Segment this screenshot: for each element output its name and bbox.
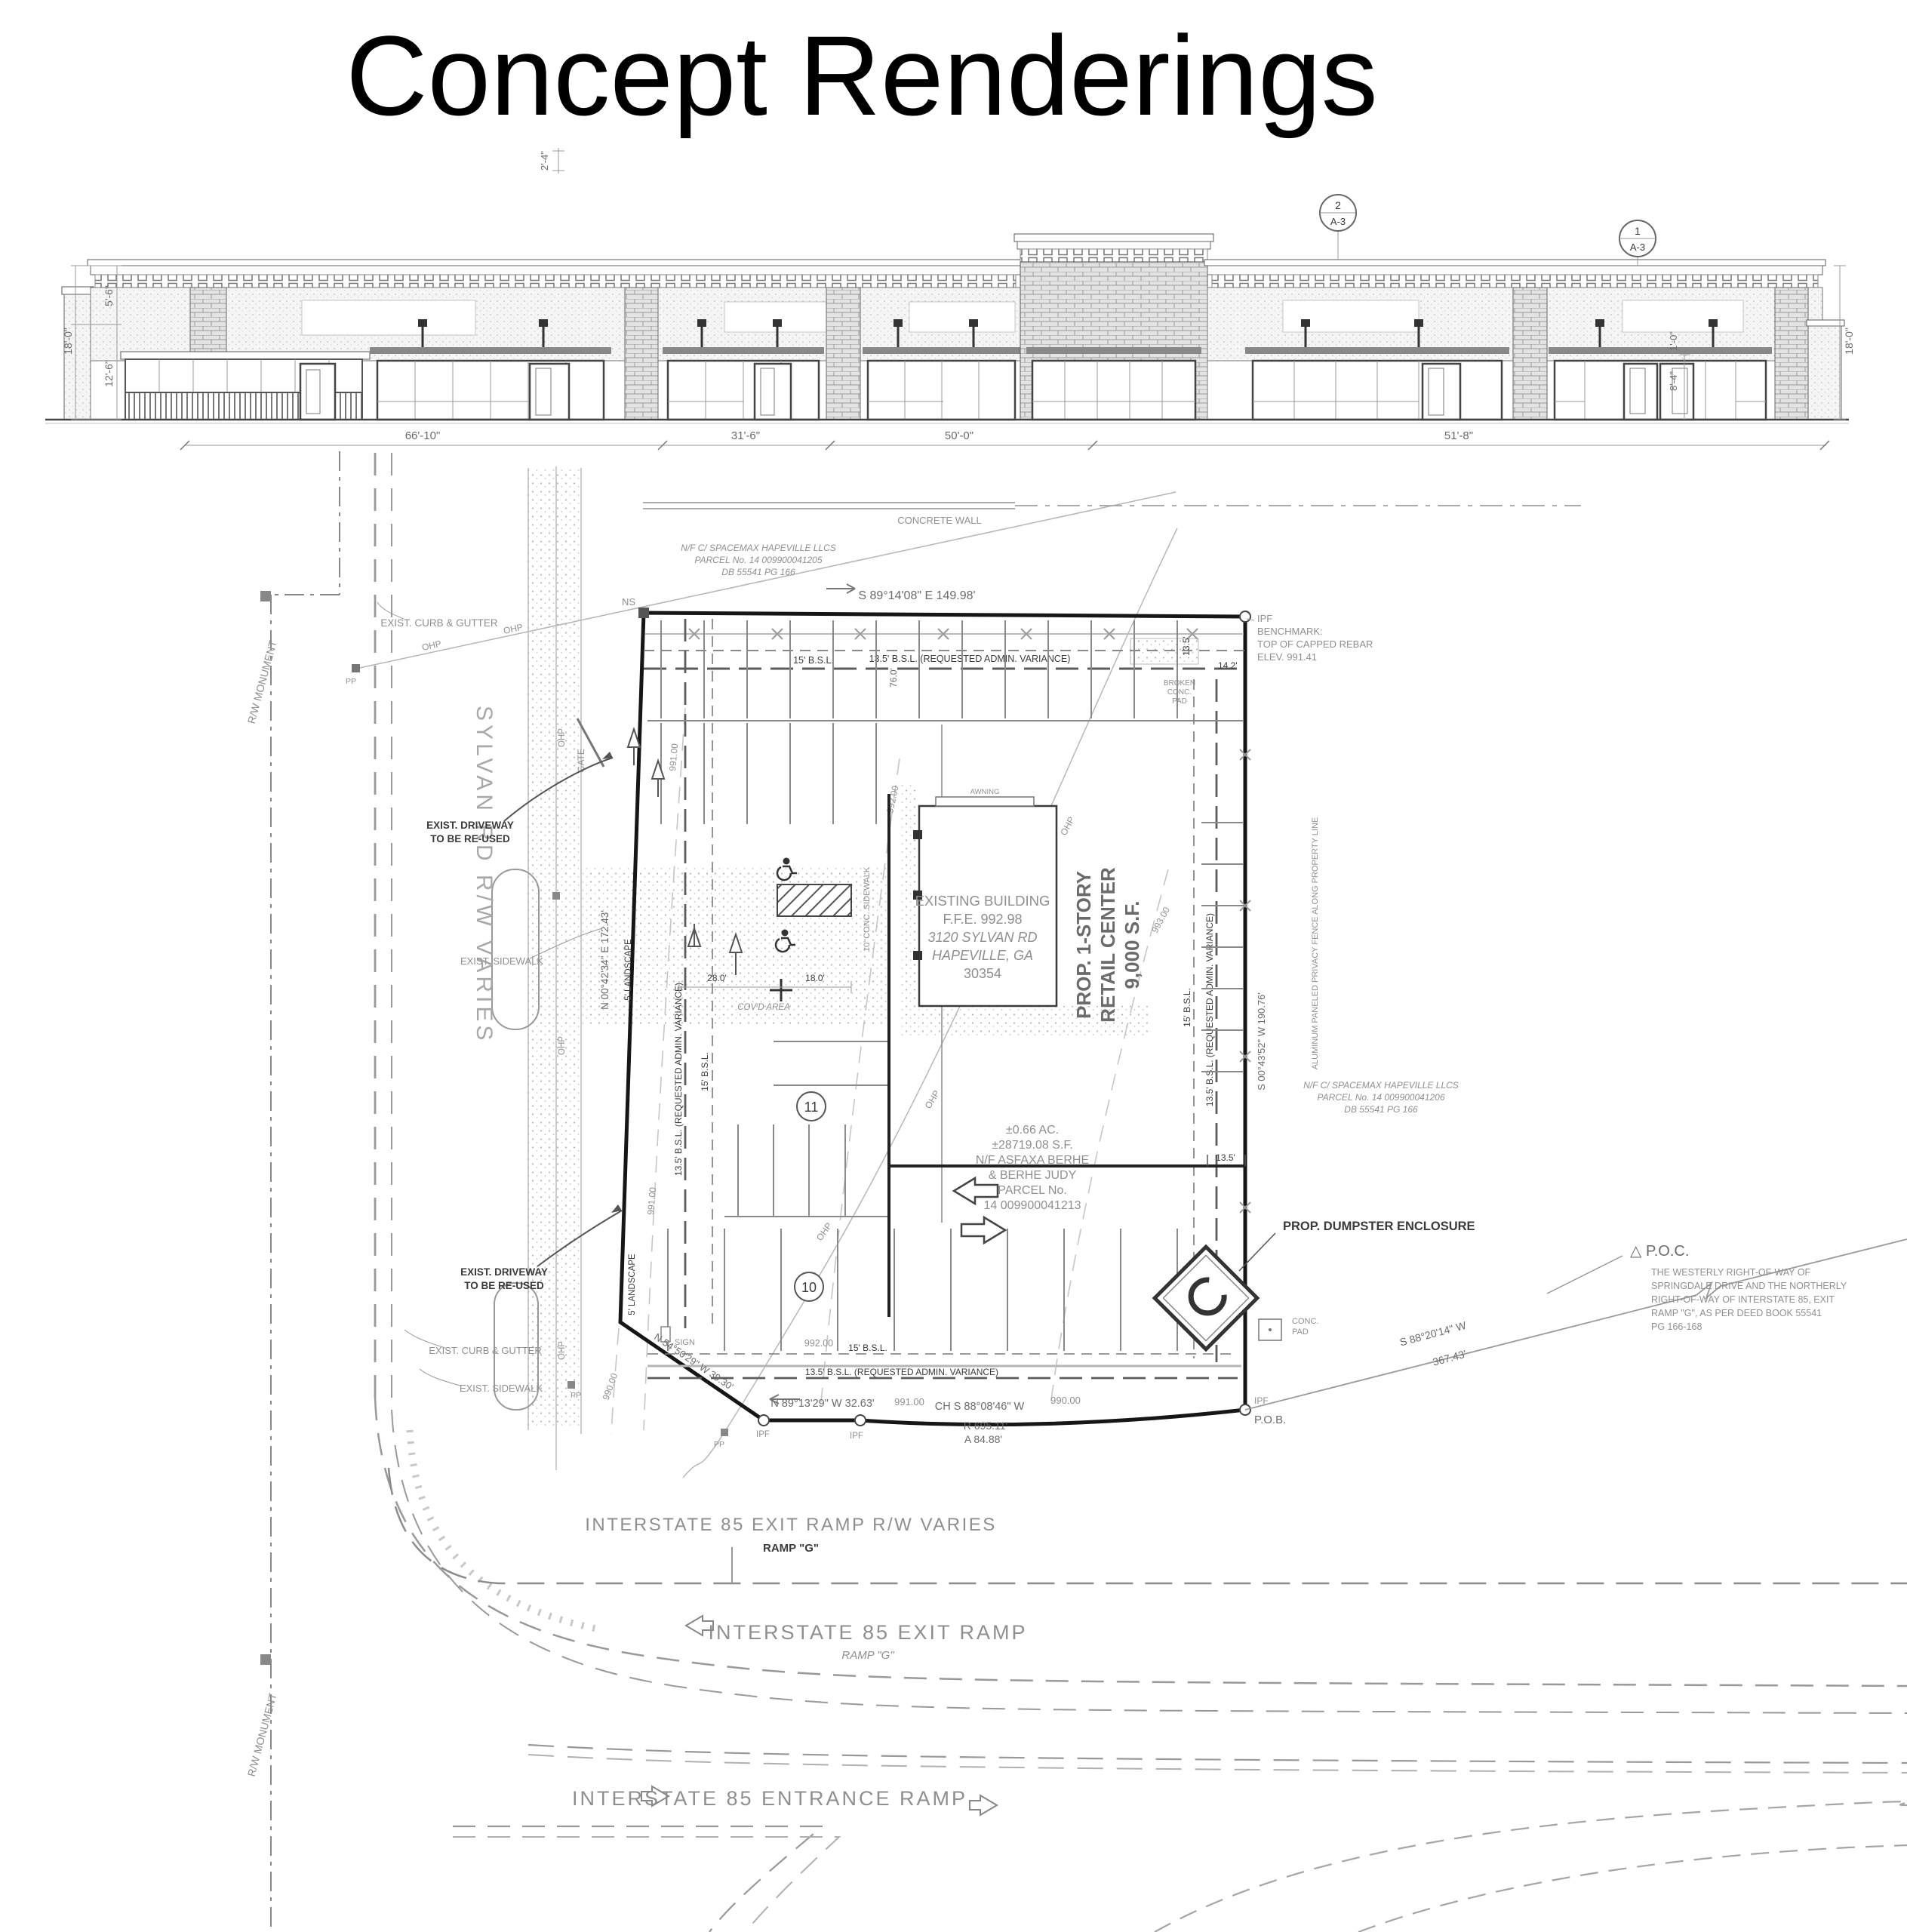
- dim-label: 12'-6": [103, 360, 115, 387]
- storefront: [868, 361, 1015, 420]
- concrete-wall: CONCRETE WALL: [643, 503, 1581, 526]
- svg-text:& BERHE JUDY: & BERHE JUDY: [989, 1169, 1077, 1182]
- svg-text:EXIST. SIDEWALK: EXIST. SIDEWALK: [460, 955, 543, 967]
- svg-text:IPF: IPF: [756, 1430, 770, 1439]
- page-title: Concept Renderings: [346, 12, 1378, 139]
- dim-label: 18'-0": [1843, 328, 1855, 355]
- parcel-north-line: PARCEL No. 14 009900041205: [694, 555, 822, 565]
- svg-text:IPF: IPF: [850, 1432, 863, 1441]
- dim-label: 51'-8": [1444, 429, 1473, 442]
- bsl-label: 15' B.S.L.: [700, 1052, 710, 1091]
- dim-label: 5'-6": [103, 285, 115, 306]
- building-elevation: 2 A-3 1 A-3 2'-4" 5'-6" 18'-0" 12'-6" 1'…: [45, 148, 1855, 450]
- contour-label: 993.00: [1149, 905, 1172, 934]
- existing-building: AWNING EXISTING BUILDING F.F.E. 992.98 3…: [889, 788, 1245, 1317]
- svg-text:EXISTING BUILDING: EXISTING BUILDING: [915, 893, 1050, 909]
- rw-monument-label: R/W MONUMENT: [245, 638, 279, 724]
- svg-text:TO BE RE-USED: TO BE RE-USED: [430, 833, 510, 844]
- canopy: [370, 347, 1020, 354]
- parcel-north-line: DB 55541 PG 166: [721, 567, 795, 577]
- svg-text:10: 10: [801, 1280, 817, 1295]
- storefront: [668, 361, 819, 420]
- detail-callout: 1 A-3: [1619, 220, 1656, 266]
- svg-text:11: 11: [804, 1100, 819, 1115]
- poc-note: △ P.O.C. THE WESTERLY RIGHT-OF-WAY OF SP…: [1547, 1243, 1847, 1332]
- svg-text:EXIST. DRIVEWAY: EXIST. DRIVEWAY: [426, 820, 514, 831]
- svg-text:△ P.O.C.: △ P.O.C.: [1630, 1243, 1689, 1260]
- retail-label: 9,000 S.F.: [1121, 900, 1143, 989]
- callout-number: 2: [1335, 199, 1341, 211]
- exit-rw-label: INTERSTATE 85 EXIT RAMP R/W VARIES: [585, 1515, 997, 1535]
- svg-text:991.00: 991.00: [894, 1396, 924, 1407]
- dumpster-label: PROP. DUMPSTER ENCLOSURE: [1283, 1220, 1475, 1233]
- svg-text:HAPEVILLE, GA: HAPEVILLE, GA: [932, 948, 1033, 963]
- ohp-label: OHP: [814, 1220, 834, 1242]
- bsl-label: 13.5' B.S.L. (REQUESTED ADMIN. VARIANCE): [869, 654, 1071, 664]
- bearing-top-label: S 89°14'08" E 149.98': [858, 589, 975, 602]
- parcel-east-line: N/F C/ SPACEMAX HAPEVILLE LLCS: [1303, 1080, 1459, 1091]
- broken-pad-label: PAD: [1172, 697, 1187, 706]
- tower: [1014, 234, 1213, 420]
- detail-callout: 2 A-3: [1320, 195, 1356, 260]
- dim-label: 1'-0": [1668, 331, 1679, 351]
- parcel-north-line: N/F C/ SPACEMAX HAPEVILLE LLCS: [681, 543, 836, 553]
- concept-renderings-sheet: Concept Renderings: [0, 0, 1907, 1932]
- ohp-label: OHP: [558, 728, 567, 747]
- dim-label: 66'-10": [405, 429, 441, 442]
- svg-text:EXIST. CURB & GUTTER: EXIST. CURB & GUTTER: [429, 1345, 542, 1356]
- svg-text:RAMP "G", AS PER DEED BOOK 555: RAMP "G", AS PER DEED BOOK 55541: [1651, 1308, 1822, 1318]
- ramp-g-label: RAMP "G": [841, 1649, 894, 1662]
- svg-text:EXIST. SIDEWALK: EXIST. SIDEWALK: [460, 1383, 543, 1394]
- brick-pier: [1775, 288, 1808, 420]
- svg-text:RIGHT-OF-WAY OF INTERSTATE 85,: RIGHT-OF-WAY OF INTERSTATE 85, EXIT: [1651, 1294, 1835, 1305]
- contour-label: 992.00: [884, 784, 900, 814]
- svg-text:EXIST. CURB & GUTTER: EXIST. CURB & GUTTER: [380, 617, 498, 629]
- bsl-label: 15' B.S.L.: [848, 1343, 887, 1353]
- conc-pad: CONC. PAD: [1259, 1317, 1318, 1340]
- bsl-label: 13.5' B.S.L. (REQUESTED ADMIN. VARIANCE): [1204, 913, 1215, 1106]
- svg-text:P.O.B.: P.O.B.: [1254, 1414, 1286, 1426]
- svg-text:30354: 30354: [964, 966, 1001, 981]
- ohp-label: OHP: [923, 1088, 943, 1110]
- ns-label: NS: [622, 596, 635, 608]
- contour-label: 990.00: [601, 1371, 620, 1401]
- storefront-double-door: [1555, 361, 1766, 420]
- south-boundary-labels: N 89°13'29" W 32.63' CH S 88°08'46" W 99…: [652, 1331, 1286, 1445]
- ramp-g-label: RAMP "G": [763, 1542, 819, 1555]
- callout-number: 1: [1635, 225, 1641, 237]
- dim-label: 28.0': [707, 973, 727, 983]
- sign-band: [1622, 300, 1743, 332]
- contour-label: 991.00: [667, 743, 680, 771]
- sidewalk-10-label: 10' CONC. SIDEWALK: [863, 866, 872, 952]
- parcel-east-line: PARCEL No. 14 009900041206: [1317, 1092, 1444, 1103]
- contour-label: 992.00: [804, 1338, 833, 1349]
- dim-label: 13.5': [1181, 636, 1192, 656]
- interstate-ramps: INTERSTATE 85 EXIT RAMP R/W VARIES RAMP …: [389, 1468, 1907, 1932]
- benchmark-note: IPF BENCHMARK: TOP OF CAPPED REBAR ELEV.…: [1247, 613, 1373, 663]
- dim-label: 14.2': [1218, 660, 1238, 671]
- svg-text:CONC.: CONC.: [1292, 1317, 1318, 1326]
- landscape-label: 5' LANDSCAPE: [628, 1254, 637, 1315]
- fence-note-label: ALUMINUM PANELED PRIVACY FENCE ALONG PRO…: [1311, 817, 1320, 1070]
- svg-text:PARCEL No.: PARCEL No.: [998, 1184, 1067, 1197]
- bearing-left-label: N 00°42'34" E 172.43': [599, 910, 611, 1010]
- landscape-label: 5' LANDSCAPE: [624, 939, 633, 1001]
- bsl-label: 13.5' B.S.L. (REQUESTED ADMIN. VARIANCE): [673, 983, 684, 1176]
- svg-text:EXIST. DRIVEWAY: EXIST. DRIVEWAY: [460, 1266, 548, 1278]
- callout-sheet: A-3: [1630, 241, 1645, 253]
- svg-text:SPRINGDALE DRIVE AND THE NORTH: SPRINGDALE DRIVE AND THE NORTHERLY: [1651, 1281, 1847, 1291]
- se-row-line: S 88°20'14" W 367.43': [1245, 1239, 1907, 1410]
- svg-text:ELEV. 991.41: ELEV. 991.41: [1257, 651, 1317, 663]
- site-parcel-text: ±0.66 AC. ±28719.08 S.F. N/F ASFAXA BERH…: [976, 1124, 1089, 1212]
- svg-text:R 695.11': R 695.11': [964, 1420, 1007, 1432]
- porch: [121, 352, 370, 420]
- retail-label: RETAIL CENTER: [1097, 867, 1119, 1023]
- exit-ramp-label: INTERSTATE 85 EXIT RAMP: [708, 1621, 1027, 1644]
- bsl-label: 15' B.S.L.: [793, 655, 834, 666]
- svg-text:PG 166-168: PG 166-168: [1651, 1321, 1702, 1332]
- broken-pad-label: BROKEN: [1164, 679, 1195, 688]
- dim-label: 8'-4": [1668, 371, 1679, 391]
- dim-label: 76.0': [888, 668, 899, 688]
- svg-text:N/F ASFAXA BERHE: N/F ASFAXA BERHE: [976, 1154, 1089, 1167]
- bearing-right-label: S 00°43'52" W 190.76': [1256, 992, 1267, 1091]
- site-plan: R/W MONUMENT R/W MONUMENT PP PP PP OHP O…: [245, 451, 1907, 1932]
- svg-text:BENCHMARK:: BENCHMARK:: [1257, 626, 1323, 637]
- svg-text:CH S 88°08'46" W: CH S 88°08'46" W: [935, 1401, 1025, 1413]
- sign-band: [909, 302, 1015, 332]
- pp-label: PP: [571, 1391, 581, 1400]
- svg-text:3120 SYLVAN RD: 3120 SYLVAN RD: [927, 930, 1037, 945]
- broken-pad-label: CONC.: [1167, 688, 1192, 697]
- svg-text:14 009900041213: 14 009900041213: [983, 1199, 1081, 1212]
- dim-label: 13.5': [1216, 1152, 1235, 1163]
- contour-label: 991.00: [645, 1186, 658, 1215]
- storefront: [1253, 361, 1502, 420]
- parcel-east-line: DB 55541 PG 166: [1344, 1104, 1418, 1115]
- storefront: [377, 361, 604, 420]
- ohp-label: OHP: [1058, 815, 1077, 838]
- brick-pier: [1513, 288, 1547, 420]
- brick-pier: [625, 288, 658, 420]
- svg-text:TOP OF CAPPED REBAR: TOP OF CAPPED REBAR: [1257, 638, 1373, 650]
- sign-band: [302, 300, 475, 335]
- crosswalk-hatch: [777, 884, 851, 916]
- retail-label: PROP. 1-STORY: [1072, 871, 1095, 1019]
- ohp-label: OHP: [503, 622, 524, 636]
- sign-band: [1283, 300, 1419, 332]
- svg-text:PAD: PAD: [1292, 1327, 1309, 1337]
- svg-text:A 84.88': A 84.88': [964, 1433, 1002, 1445]
- pp-label: PP: [714, 1440, 724, 1449]
- dim-label: 2'-4": [539, 151, 550, 171]
- sylvan-rd-label: SYLVAN RD R/W VARIES: [472, 706, 497, 1044]
- dim-label: 31'-6": [731, 429, 760, 442]
- dim-label: 18.0': [805, 973, 825, 983]
- rw-monument-line: R/W MONUMENT R/W MONUMENT: [245, 451, 340, 1932]
- stall-count-badge: 10: [795, 1272, 823, 1301]
- svg-text:IPF: IPF: [1257, 613, 1272, 624]
- rw-monument-label: R/W MONUMENT: [245, 1691, 279, 1777]
- dim-label: 18'-0": [62, 328, 74, 355]
- concrete-wall-label: CONCRETE WALL: [897, 515, 981, 526]
- callout-sheet: A-3: [1330, 216, 1346, 227]
- bsl-label: 15' B.S.L.: [1182, 988, 1192, 1027]
- svg-text:990.00: 990.00: [1050, 1395, 1081, 1406]
- svg-text:S 88°20'14" W: S 88°20'14" W: [1398, 1319, 1468, 1349]
- ohp-label: OHP: [558, 1341, 567, 1360]
- stall-count-badge: 11: [797, 1092, 826, 1121]
- brick-pier: [826, 288, 860, 420]
- svg-text:TO BE RE-USED: TO BE RE-USED: [464, 1280, 544, 1291]
- awning-label: AWNING: [970, 788, 1000, 796]
- svg-text:±28719.08 S.F.: ±28719.08 S.F.: [992, 1139, 1073, 1152]
- bsl-label: 13.5' B.S.L. (REQUESTED ADMIN. VARIANCE): [805, 1367, 998, 1377]
- pp-label: PP: [346, 677, 356, 686]
- ohp-label: OHP: [558, 1036, 567, 1055]
- svg-text:N 89°13'29" W 32.63': N 89°13'29" W 32.63': [770, 1398, 875, 1410]
- svg-text:THE WESTERLY RIGHT-OF-WAY OF: THE WESTERLY RIGHT-OF-WAY OF: [1651, 1267, 1810, 1278]
- svg-text:F.F.E. 992.98: F.F.E. 992.98: [943, 912, 1022, 927]
- svg-text:±0.66 AC.: ±0.66 AC.: [1006, 1124, 1059, 1137]
- dim-label: 50'-0": [945, 429, 973, 442]
- covd-area-label: COV'D AREA: [737, 1003, 790, 1012]
- svg-text:367.43': 367.43': [1432, 1348, 1468, 1368]
- entrance-ramp-label: INTERSTATE 85 ENTRANCE RAMP: [572, 1787, 967, 1810]
